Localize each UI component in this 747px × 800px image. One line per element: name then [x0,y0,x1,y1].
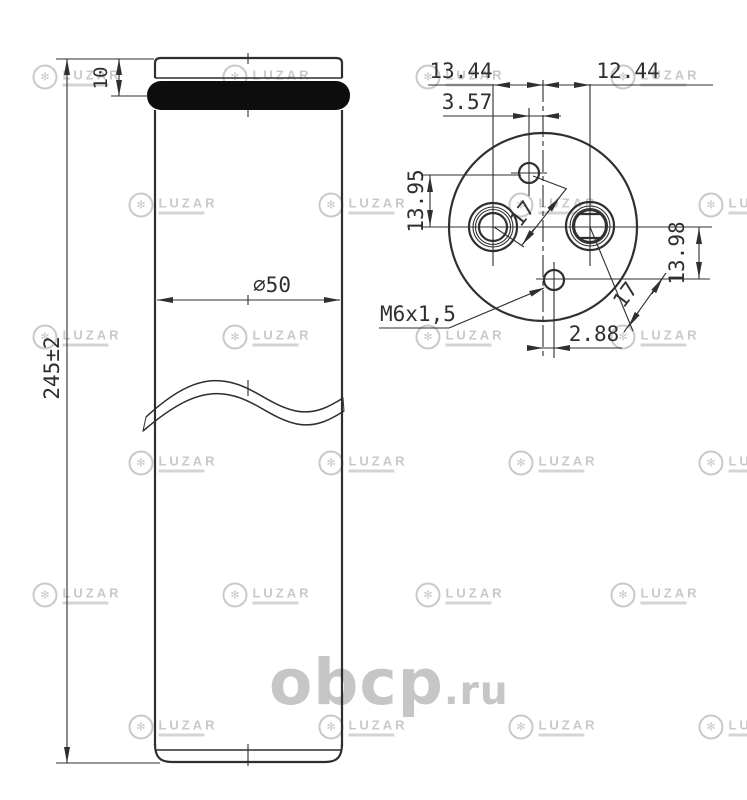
right-port-hole [566,84,614,266]
dim-bottom-hole-x-label: 2.88 [569,322,620,346]
dim-bottom-hole-y: 13.98 [665,221,699,284]
top-small-hole [511,108,547,196]
top-view: 13.44 12.44 3.57 13.95 13.98 [379,59,713,358]
dim-hole-offsets-top: 13.44 12.44 [428,59,713,85]
seal-band [147,81,350,110]
dim-diameter: ⌀50 [157,273,340,305]
dim-top-hole-y-label: 13.95 [404,169,428,232]
dim-left-hole-x-label: 13.44 [429,59,492,83]
dim-cap-height: 10 [90,59,148,96]
dim-cap-height-label: 10 [90,67,112,90]
wave-lower-line [143,394,344,431]
thread-callout-label: M6x1,5 [380,302,456,326]
dim-total-height: 245±2 [40,59,160,763]
dim-bottom-hole-x: 2.88 [527,322,622,348]
wave-mask [143,381,344,431]
dim-bottom-hole-y-label: 13.98 [665,221,689,284]
canvas: { "drawing": { "side_view": { "dims": { … [0,0,747,800]
dim-top-hole-x-label: 3.57 [442,90,493,114]
dim-right-hole-x-label: 12.44 [596,59,659,83]
dim-total-height-label: 245±2 [40,336,64,399]
thread-callout: M6x1,5 [379,288,544,328]
technical-drawing: 245±2 10 ⌀50 [0,0,747,800]
side-view: 245±2 10 ⌀50 [40,53,350,766]
dim-diameter-label: ⌀50 [253,273,291,297]
